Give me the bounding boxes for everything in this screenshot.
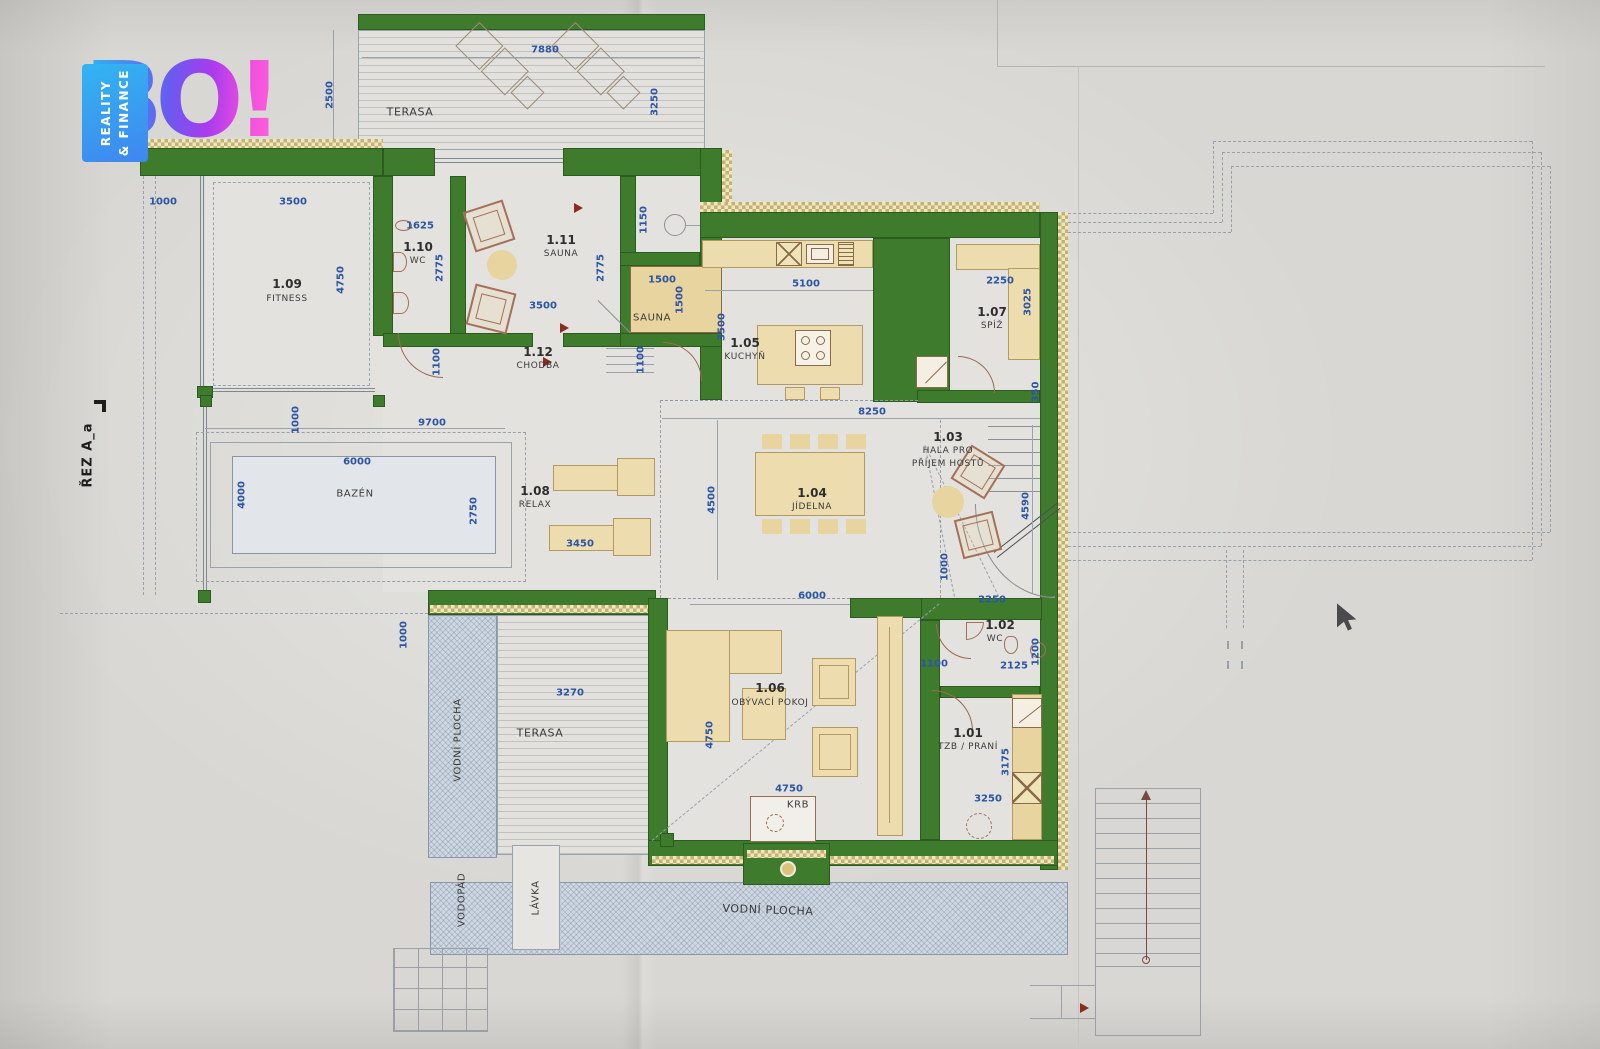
- wall-insulation: [1058, 212, 1068, 870]
- dining-chair: [762, 434, 782, 449]
- step-line: [606, 372, 654, 373]
- dim-line: [1032, 425, 1033, 593]
- dim-line: [205, 428, 505, 429]
- boundary: [660, 400, 661, 598]
- dim: 7880: [531, 45, 559, 56]
- dim: 4750: [336, 266, 347, 294]
- room-name-jidelna: JÍDELNA: [792, 502, 832, 512]
- dim: 1625: [406, 221, 434, 232]
- toilet-icon: [393, 252, 407, 272]
- wall-post: [660, 833, 674, 847]
- dim: 4750: [775, 784, 803, 795]
- appliance-icon: [838, 242, 854, 266]
- floorplan-scan: ŘEZ A_a TERASA 1.09 FITNESS 1.10 WC 1.11…: [0, 0, 1600, 1049]
- dim: 3500: [717, 313, 728, 341]
- dim: 1000: [149, 197, 177, 208]
- room-num-wc1: 1.10: [403, 240, 433, 254]
- room-num-obyvaci: 1.06: [755, 681, 785, 695]
- site-line: [1226, 550, 1227, 628]
- paper-edge: [997, 0, 998, 66]
- room-name-hala-2: PŘÍJEM HOSTŮ: [912, 459, 984, 469]
- site-mark: [1227, 641, 1243, 649]
- pantry-counter: [956, 244, 1040, 270]
- site-line: [1541, 152, 1542, 546]
- dim: 2250: [986, 276, 1014, 287]
- site-line: [1068, 546, 1541, 547]
- room-num-kuchyn: 1.05: [730, 336, 760, 350]
- washer-icon: [1012, 698, 1042, 728]
- wall-segment: [383, 148, 435, 176]
- room-name-chodba: CHODBA: [517, 361, 560, 371]
- stairs-landing: [1095, 966, 1201, 1036]
- room-num-chodba: 1.12: [523, 345, 553, 359]
- brand-logo-tagline: REALITY & FINANCE: [97, 69, 133, 156]
- dim: 3500: [279, 197, 307, 208]
- step-line: [606, 348, 654, 349]
- dim: 1000: [940, 553, 951, 581]
- site-line: [143, 176, 144, 595]
- stairs-arrow-head: [1141, 790, 1151, 800]
- wall-segment: [563, 148, 702, 176]
- side-table: [487, 250, 517, 280]
- area-label-krb: KRB: [787, 800, 809, 811]
- room-num-fitness: 1.09: [272, 277, 302, 291]
- site-line: [1231, 166, 1232, 232]
- room-num-sauna: 1.11: [546, 233, 576, 247]
- dim: 2775: [435, 254, 446, 282]
- dim: 6000: [798, 591, 826, 602]
- dim-line: [690, 604, 850, 605]
- dining-chair: [762, 519, 782, 534]
- room-name-wc2: WC: [987, 634, 1003, 644]
- dim: 4500: [707, 486, 718, 514]
- site-line: [60, 613, 428, 614]
- garden-steps: [393, 948, 488, 1032]
- dim-line: [662, 418, 1040, 419]
- section-label: ŘEZ A_a: [81, 422, 96, 487]
- shower-arm: [686, 225, 700, 226]
- room-num-relax: 1.08: [520, 484, 550, 498]
- exterior-stairs: [1095, 788, 1201, 966]
- site-line: [1068, 532, 1550, 533]
- dining-chair: [818, 434, 838, 449]
- room-num-spiz: 1.07: [977, 305, 1007, 319]
- dim: 9700: [418, 418, 446, 429]
- dining-chair: [846, 519, 866, 534]
- glass-wall: [200, 176, 204, 390]
- dim: 3450: [566, 539, 594, 550]
- room-num-tzb: 1.01: [953, 726, 983, 740]
- pool: [232, 456, 496, 554]
- sink-icon: [806, 244, 834, 264]
- dim: 1150: [639, 206, 650, 234]
- site-line: [1550, 166, 1551, 532]
- room-name-kuchyn: KUCHYŇ: [724, 352, 765, 362]
- area-label-lavka: LÁVKA: [531, 880, 542, 915]
- dim: 2125: [1000, 661, 1028, 672]
- dining-chair: [790, 434, 810, 449]
- dim-line: [362, 57, 700, 58]
- wall-segment: [373, 176, 393, 336]
- column-post: [373, 395, 385, 407]
- dim: 3175: [1001, 748, 1012, 776]
- glass-wall: [200, 388, 375, 392]
- dim: 2750: [469, 497, 480, 525]
- site-line: [1243, 550, 1244, 628]
- wall-segment: [620, 252, 700, 266]
- site-line: [1213, 141, 1532, 142]
- dim: 4590: [1021, 492, 1032, 520]
- lounger: [549, 518, 653, 558]
- side-table: [932, 486, 964, 518]
- terrace-wall: [358, 14, 705, 30]
- dim: 1100: [636, 346, 647, 374]
- dim: 3270: [556, 688, 584, 699]
- dim: 1100: [920, 659, 948, 670]
- column-post: [200, 395, 212, 407]
- ottoman: [742, 688, 786, 740]
- electrical-panel: [916, 356, 948, 388]
- grid-line: [1030, 985, 1096, 986]
- mouse-cursor: [1334, 602, 1360, 634]
- dim: 2500: [325, 81, 336, 109]
- area-label-bazen: BAZÉN: [336, 489, 373, 500]
- room-name-tzb: TZB / PRANÍ: [938, 742, 998, 752]
- room-name-fitness: FITNESS: [266, 294, 307, 304]
- washer-icon: [1012, 772, 1042, 804]
- dim: 4750: [705, 721, 716, 749]
- dim: 1100: [432, 348, 443, 376]
- paper-edge: [997, 66, 1545, 67]
- site-line: [1213, 141, 1214, 213]
- site-line: [1231, 166, 1550, 167]
- dim: 8250: [858, 407, 886, 418]
- dim: 1000: [399, 621, 410, 649]
- sofa: [666, 630, 730, 742]
- dim: 3500: [529, 301, 557, 312]
- dim: 1500: [675, 286, 686, 314]
- toilet-icon: [1004, 636, 1018, 654]
- room-num-wc2: 1.02: [985, 618, 1015, 632]
- fireplace-flue: [766, 814, 784, 832]
- room-name-obyvaci: OBÝVACÍ POKOJ: [731, 698, 808, 708]
- direction-arrow: [560, 323, 569, 333]
- wall-segment: [648, 598, 668, 842]
- wall-insulation: [747, 850, 826, 858]
- area-label-sauna-box: SAUNA: [633, 313, 671, 324]
- site-line: [1222, 152, 1223, 222]
- dim: 4000: [237, 481, 248, 509]
- chimney-ring: [780, 861, 796, 877]
- area-label-terasa-top: TERASA: [387, 106, 434, 119]
- area-label-vodopad: VODOPÁD: [457, 873, 468, 927]
- site-line: [1532, 141, 1533, 560]
- brand-logo: BO! REALITY & FINANCE: [82, 52, 322, 172]
- cooktop-icon: [795, 330, 831, 366]
- room-num-hala: 1.03: [933, 430, 963, 444]
- stool: [785, 387, 805, 400]
- wall-segment: [450, 176, 466, 336]
- room-name-spiz: SPÍŽ: [981, 321, 1003, 331]
- grid-line: [1061, 985, 1062, 1019]
- room-name-hala-1: HALA PRO: [923, 446, 974, 456]
- area-label-vodni-vert: VODNÍ PLOCHA: [453, 698, 464, 782]
- step-line: [606, 364, 654, 365]
- stairs-arrow-line: [1146, 800, 1147, 960]
- site-line: [1068, 213, 1213, 214]
- dim: 3250: [650, 88, 661, 116]
- site-line: [155, 176, 156, 595]
- room-name-sauna: SAUNA: [544, 249, 579, 259]
- dim: 5100: [792, 279, 820, 290]
- column-post: [198, 590, 211, 603]
- lounger: [553, 458, 657, 498]
- wall-insulation: [652, 856, 1054, 864]
- dim: 3250: [974, 794, 1002, 805]
- wall-segment: [563, 333, 622, 347]
- dining-chair: [790, 519, 810, 534]
- dim: 3025: [1023, 288, 1034, 316]
- tv-sideboard: [877, 616, 903, 836]
- dim-line: [705, 290, 873, 291]
- dim: 6000: [343, 457, 371, 468]
- site-line: [1068, 222, 1222, 223]
- section-mark: ŘEZ A_a: [72, 400, 106, 510]
- dim: 2775: [596, 254, 607, 282]
- dim: 350: [1031, 382, 1042, 403]
- grid-line: [1030, 1018, 1096, 1019]
- toilet-icon: [393, 292, 409, 314]
- dim: 1500: [648, 275, 676, 286]
- wall-segment: [850, 598, 922, 618]
- terrace-door[interactable]: [435, 158, 563, 163]
- dim: 2250: [978, 595, 1006, 606]
- direction-arrow: [1080, 1003, 1089, 1013]
- room-name-relax: RELAX: [519, 500, 551, 510]
- cooker-icon: [776, 242, 802, 266]
- stairs-arrow-start: [1142, 956, 1150, 964]
- site-line: [1222, 152, 1541, 153]
- dining-chair: [818, 519, 838, 534]
- brand-logo-badge: REALITY & FINANCE: [82, 64, 148, 162]
- stool: [820, 387, 840, 400]
- armchair: [812, 727, 858, 777]
- step-line: [606, 356, 654, 357]
- dining-chair: [846, 434, 866, 449]
- wall-insulation: [700, 202, 1040, 212]
- dim: 1200: [1031, 638, 1042, 666]
- dim: 1000: [291, 406, 302, 434]
- area-label-terasa-bottom: TERASA: [517, 727, 564, 740]
- wall-segment: [700, 212, 1040, 238]
- floor-drain: [966, 813, 992, 839]
- wall-insulation: [430, 605, 654, 613]
- site-mark: [1227, 661, 1243, 669]
- site-line: [1068, 232, 1231, 233]
- site-line: [1068, 560, 1532, 561]
- room-name-wc1: WC: [410, 256, 426, 266]
- armchair: [812, 658, 856, 706]
- direction-arrow: [574, 203, 583, 213]
- room-num-jidelna: 1.04: [797, 486, 827, 500]
- shower-icon: [664, 214, 686, 236]
- boundary: [660, 400, 918, 401]
